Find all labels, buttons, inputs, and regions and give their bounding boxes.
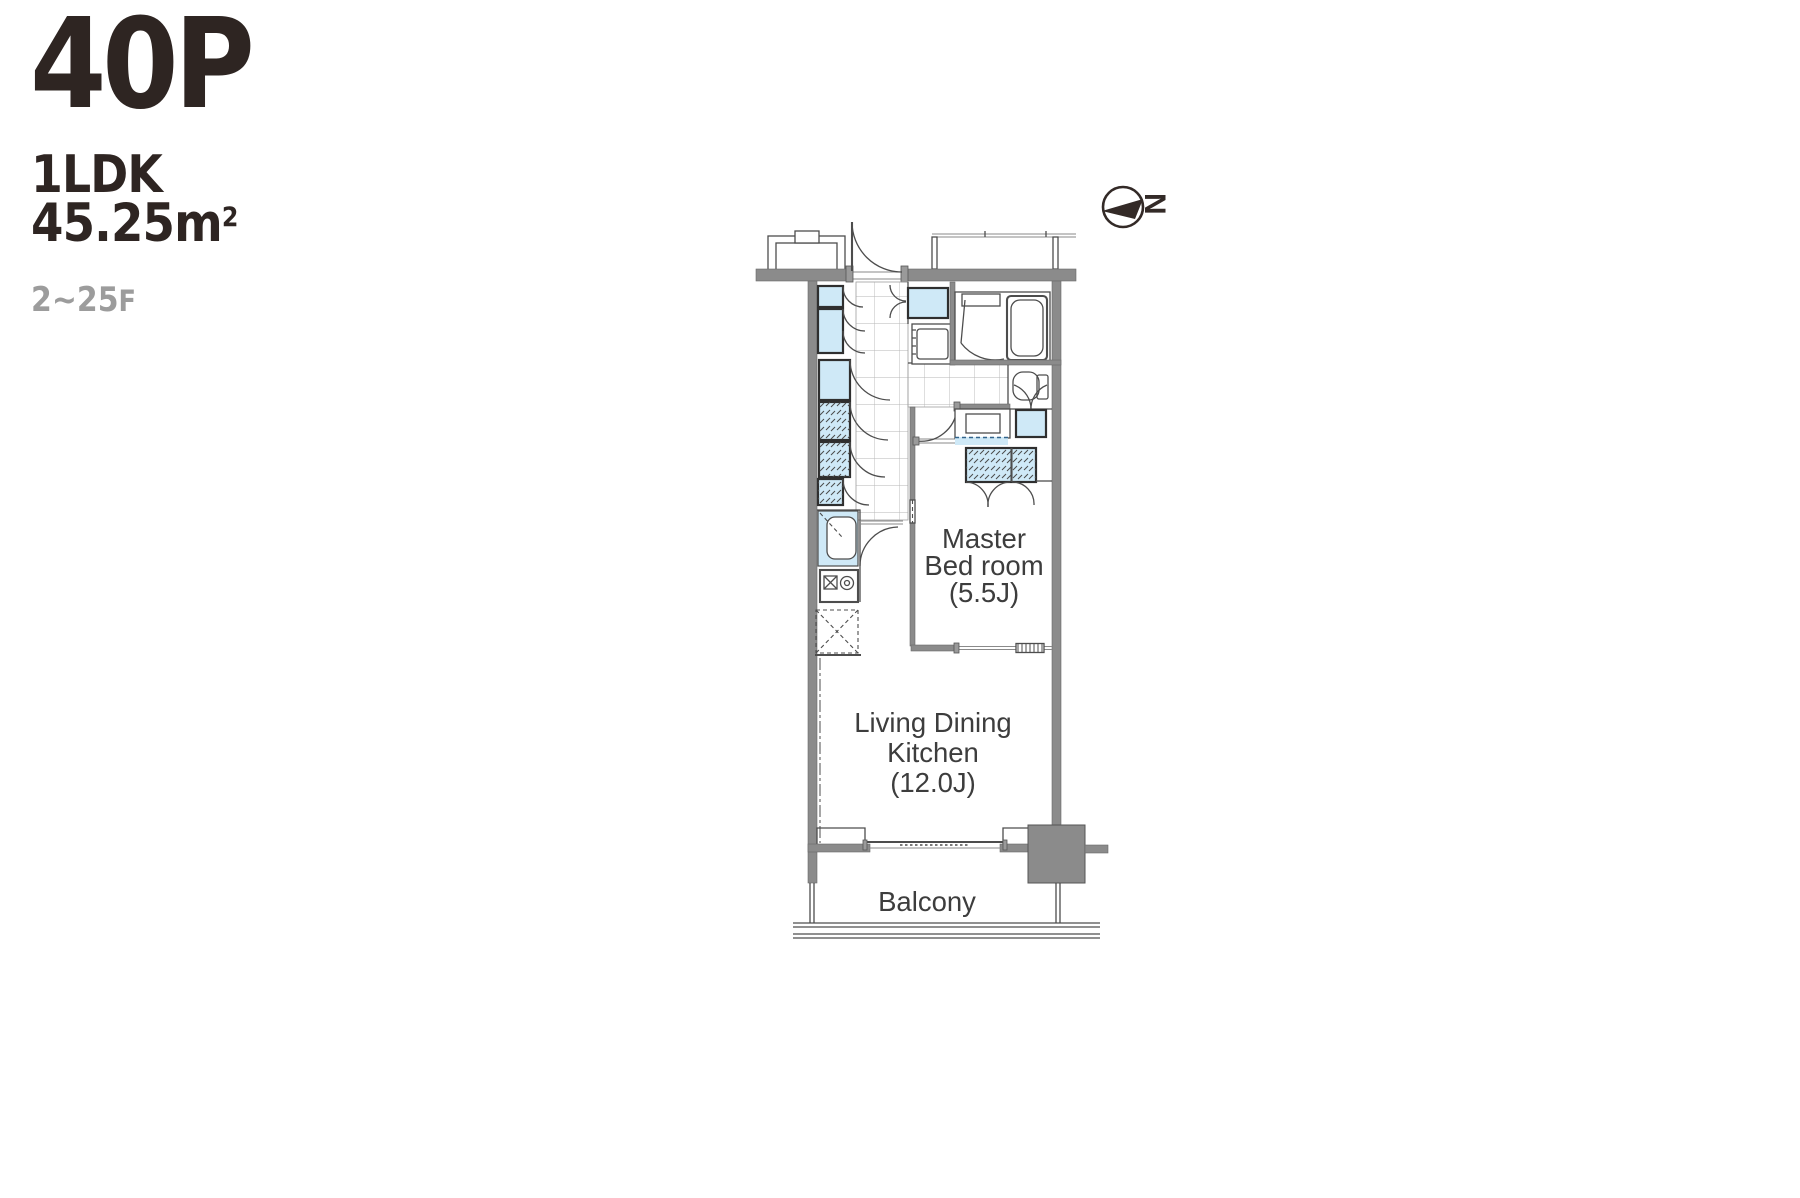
floor-range: 2~25F [31,283,136,317]
balcony-label: Balcony [878,886,976,917]
kitchen-door [860,521,903,566]
compass-north-label: N [1138,193,1171,215]
ldk-label-line2: Kitchen [887,737,979,768]
bedroom-closet [966,448,1036,507]
floor-plan: N Master Bed room (5.5J) Living Dining K… [640,140,1200,960]
area-superscript: 2 [222,202,239,233]
ldk-label-line3: (12.0J) [890,767,976,798]
floor-area: 45.25m2 [31,197,238,250]
refrigerator-space [816,610,858,653]
north-wall [756,266,1076,282]
bedroom-ldk-partition [911,643,1052,653]
page: 40P 1LDK 45.25m2 2~25F [0,0,1800,1198]
balcony-boundary [808,825,1108,883]
area-value: 45.25m [31,193,222,254]
washbasin-counter [908,288,948,318]
entrance-door [852,222,902,272]
plan-code-title: 40P [30,2,251,127]
ldk-label-line1: Living Dining [854,707,1011,738]
open-walkway [932,231,1076,269]
balcony-sliding-door [863,840,1007,850]
bedroom-label-line3: (5.5J) [949,577,1019,608]
bathroom [950,292,1061,365]
toilet [1013,372,1048,411]
balcony-railing [793,923,1100,938]
bedroom-door [913,402,960,445]
bathtub [1007,296,1047,360]
kitchen-sink [818,511,858,566]
stove [820,570,858,602]
bedroom-counter [955,409,1010,445]
structural-column [1028,825,1085,883]
floor-suffix: F [119,284,136,318]
room-labels: Master Bed room (5.5J) Living Dining Kit… [854,523,1043,917]
washing-machine-pan [912,324,953,364]
compass-icon: N [1102,187,1171,227]
toilet-room [1008,365,1052,411]
meter-box-alcove [768,231,845,271]
bedroom-washbasin [1016,410,1046,437]
